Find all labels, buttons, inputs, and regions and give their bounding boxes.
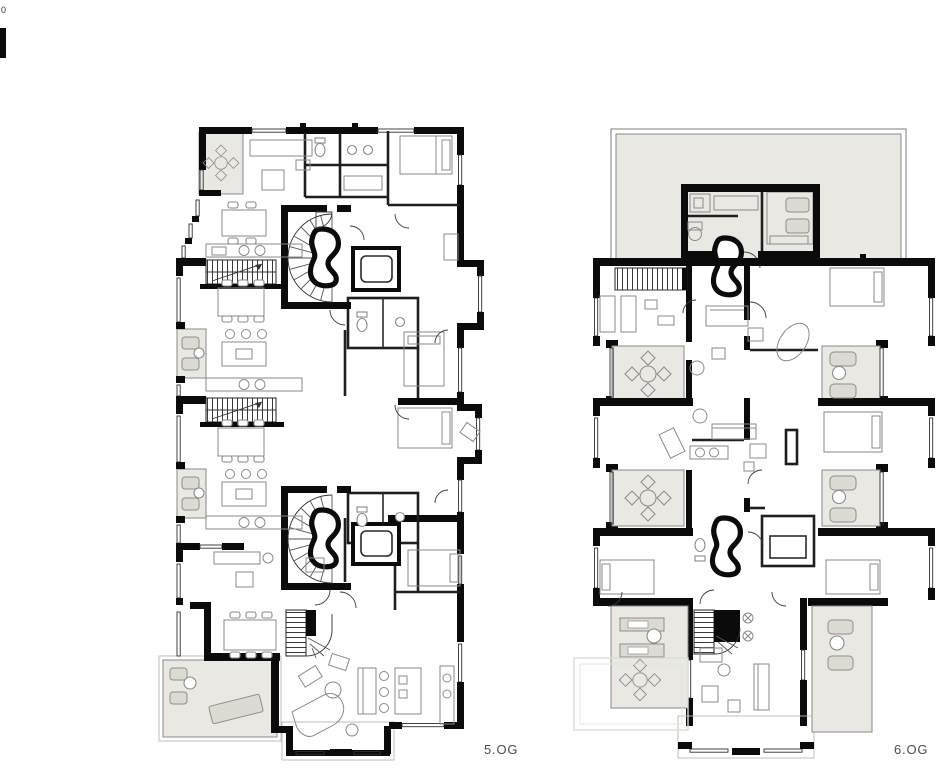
furniture-5og [206,136,480,741]
plan-sheet: 0 [0,0,947,768]
roof-terrace-6og [611,129,906,260]
floor-plan-6og [574,129,935,758]
interior-walls-5og [305,131,460,756]
bottom-wing-6og [678,598,814,758]
furniture-6og [600,268,884,606]
plan-label-5og: 5.OG [484,742,518,757]
switchback-stair-5og [286,610,332,658]
perimeter-walls-6og [593,254,935,606]
floor-plan-5og [159,123,484,760]
scale-mark: 0 [0,5,6,58]
scale-bar [0,28,6,58]
straight-stair-6og [615,268,687,290]
balcony-furniture-5og [170,145,263,724]
scale-zero-label: 0 [1,5,6,15]
floor-plan-drawing: 0 [0,0,947,768]
stair-core-2-5og [281,486,399,590]
plan-label-6og: 6.OG [894,742,928,757]
